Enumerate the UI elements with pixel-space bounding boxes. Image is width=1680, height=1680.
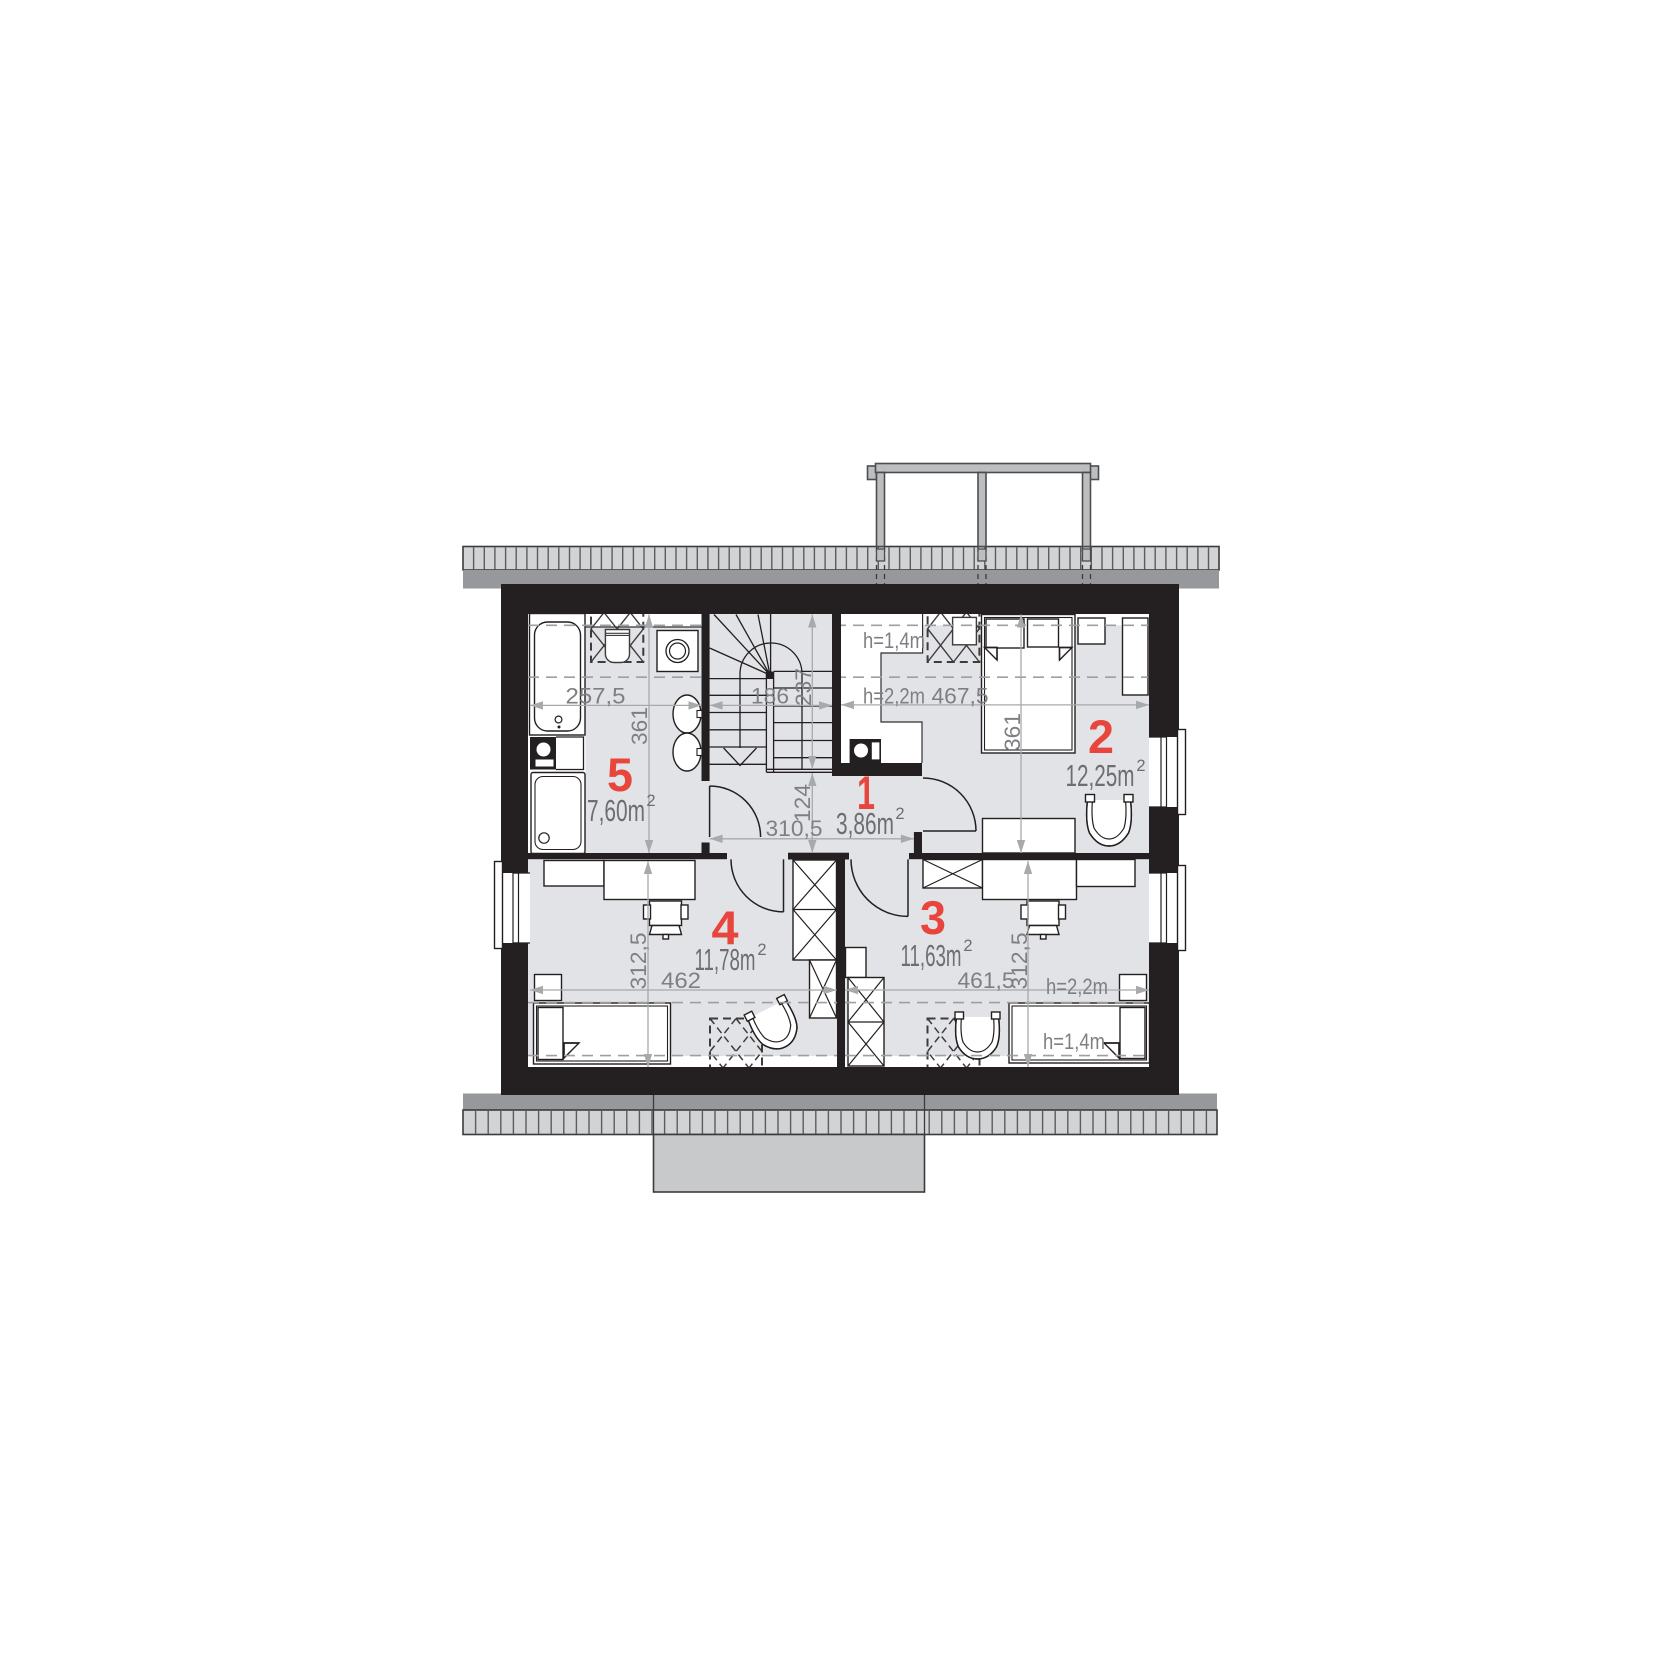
svg-text:361: 361 (627, 707, 652, 745)
svg-text:12,25m: 12,25m (1066, 758, 1135, 793)
svg-text:186: 186 (751, 684, 789, 709)
svg-text:361: 361 (1000, 713, 1025, 751)
svg-text:461,5: 461,5 (958, 968, 1015, 993)
svg-text:312,5: 312,5 (626, 933, 651, 990)
svg-text:5: 5 (607, 748, 633, 801)
svg-text:257,5: 257,5 (566, 684, 626, 709)
svg-text:1: 1 (857, 766, 875, 819)
svg-text:2: 2 (1136, 757, 1145, 775)
svg-text:237: 237 (791, 668, 816, 706)
svg-text:2: 2 (646, 792, 655, 810)
svg-text:124: 124 (790, 784, 815, 822)
svg-text:2: 2 (1088, 710, 1114, 763)
svg-text:2: 2 (963, 937, 972, 955)
svg-text:4: 4 (712, 901, 739, 954)
svg-text:2: 2 (757, 941, 766, 959)
svg-text:3: 3 (920, 891, 946, 944)
svg-text:h=1,4m: h=1,4m (863, 628, 925, 653)
svg-text:h=2,2m: h=2,2m (863, 684, 925, 709)
svg-text:h=1,4m: h=1,4m (1043, 1029, 1105, 1054)
svg-text:h=2,2m: h=2,2m (1046, 974, 1108, 999)
svg-text:467,5: 467,5 (932, 684, 989, 709)
svg-text:2: 2 (895, 805, 904, 823)
svg-text:312,5: 312,5 (1007, 933, 1032, 990)
